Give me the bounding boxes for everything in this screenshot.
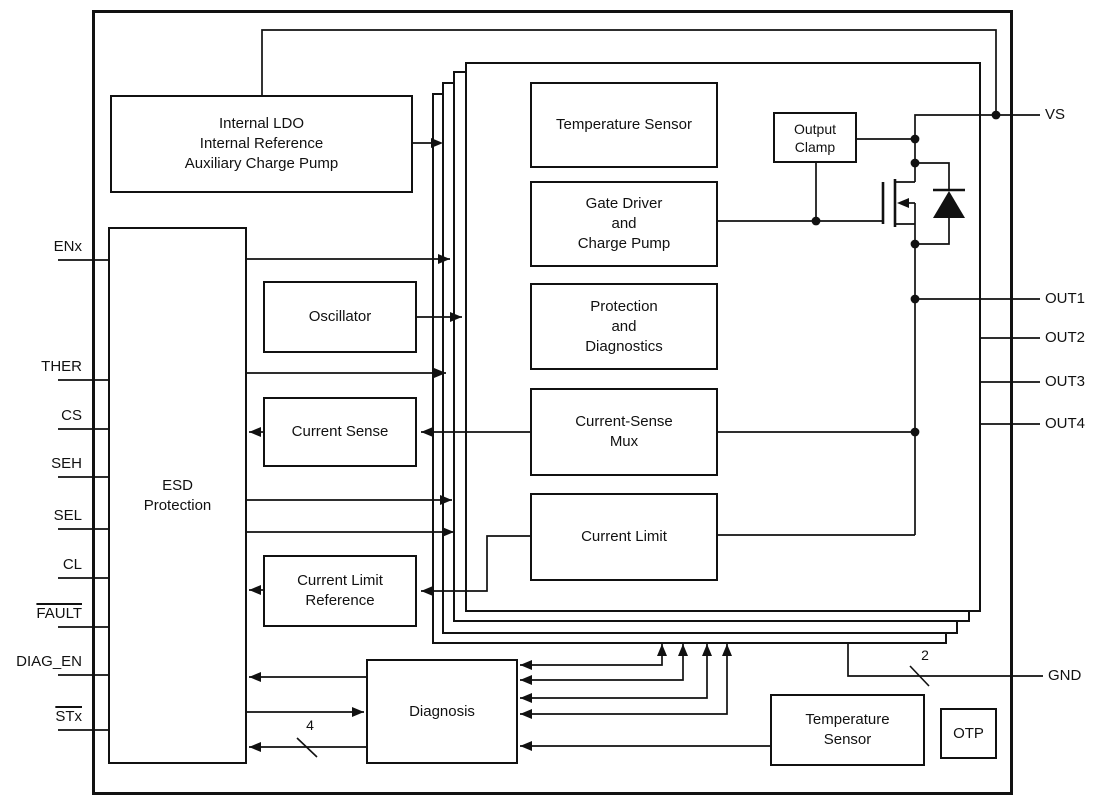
output-clamp-block: Output Clamp xyxy=(773,112,857,163)
otp-block: OTP xyxy=(940,708,997,759)
oscillator-block: Oscillator xyxy=(263,281,417,353)
temperature-sensor-block: Temperature Sensor xyxy=(770,694,925,766)
channel-temperature-sensor-block: Temperature Sensor xyxy=(530,82,718,168)
current-limit-reference-block: Current Limit Reference xyxy=(263,555,417,627)
pin-cl: CL xyxy=(8,555,82,575)
pin-gnd: GND xyxy=(1048,666,1100,686)
pin-enx: ENx xyxy=(8,237,82,257)
block-diagram: Internal LDO Internal Reference Auxiliar… xyxy=(0,0,1100,805)
gate-driver-charge-pump-block: Gate Driver and Charge Pump xyxy=(530,181,718,267)
pin-ther: THER xyxy=(8,357,82,377)
current-sense-mux-block: Current-Sense Mux xyxy=(530,388,718,476)
protection-diagnostics-block: Protection and Diagnostics xyxy=(530,283,718,370)
pin-cs: CS xyxy=(8,406,82,426)
current-sense-block: Current Sense xyxy=(263,397,417,467)
gnd-bus-width-label: 2 xyxy=(913,646,937,664)
pin-out2: OUT2 xyxy=(1045,328,1100,348)
pin-seh: SEH xyxy=(8,454,82,474)
pin-fault: FAULT xyxy=(8,604,82,624)
current-limit-block: Current Limit xyxy=(530,493,718,581)
diagnosis-block: Diagnosis xyxy=(366,659,518,764)
stx-bus-width-label: 4 xyxy=(298,716,322,734)
internal-ldo-block: Internal LDO Internal Reference Auxiliar… xyxy=(110,95,413,193)
pin-out4: OUT4 xyxy=(1045,414,1100,434)
pin-out3: OUT3 xyxy=(1045,372,1100,392)
pin-diag-en: DIAG_EN xyxy=(8,652,82,672)
pin-sel: SEL xyxy=(8,506,82,526)
pin-stx: STx xyxy=(8,707,82,727)
pin-out1: OUT1 xyxy=(1045,289,1100,309)
pin-vs: VS xyxy=(1045,105,1100,125)
esd-protection-block: ESD Protection xyxy=(108,227,247,764)
